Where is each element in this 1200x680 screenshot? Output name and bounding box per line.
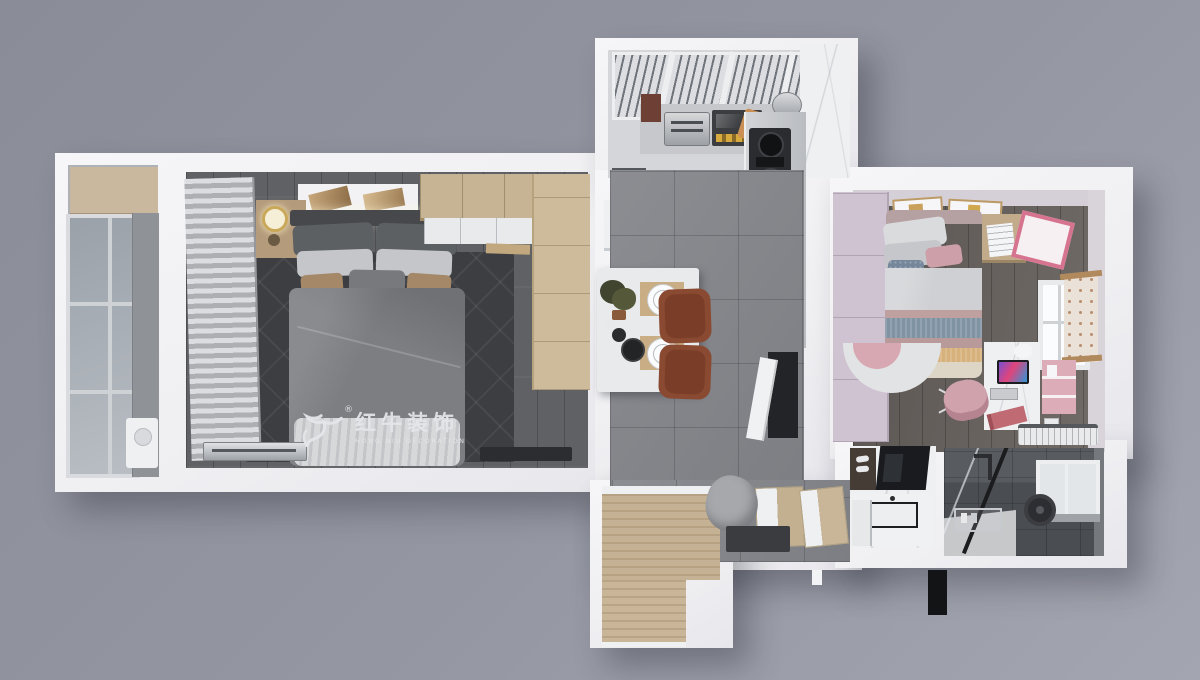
fan-hub	[1036, 506, 1044, 514]
shoe-cabinet	[602, 494, 720, 580]
registered-trademark-symbol: ®	[344, 405, 353, 415]
watermark: ® 红牛装饰 HONG NIU DECORATION	[300, 405, 480, 453]
wardrobe-side	[532, 174, 590, 390]
desk-monitor	[997, 360, 1029, 384]
toaster-slot	[671, 129, 703, 132]
kids-duvet-top	[885, 268, 982, 314]
pink-shelf-unit	[1042, 360, 1076, 414]
bull-logo-wrap: ®	[300, 409, 346, 449]
dining-chair	[658, 344, 712, 400]
bathroom-mirror	[876, 446, 931, 490]
brand-name-chinese: 红牛装饰	[355, 413, 466, 434]
window-mullion-vertical	[1058, 285, 1061, 365]
shower-head-pipe	[988, 454, 992, 480]
bathroom-niche-shelf	[850, 448, 876, 490]
shower-room	[944, 448, 1104, 556]
washing-machine	[852, 500, 872, 546]
kitchen-marble-wall	[800, 44, 850, 178]
bull-logo-icon	[300, 409, 344, 447]
white-vase	[603, 318, 614, 329]
bath-cart	[954, 508, 1002, 532]
entry-floor-mat	[726, 526, 790, 552]
chair-seat-cushion	[664, 293, 706, 338]
slippers	[856, 455, 870, 463]
art-gold-streak	[363, 188, 406, 213]
console-slot	[212, 449, 296, 452]
dining-chair	[658, 288, 712, 344]
floorplan-render: ® 红牛装饰 HONG NIU DECORATION	[0, 0, 1200, 680]
shoe-cabinet-lower	[602, 580, 686, 647]
balcony-storage-cabinet	[70, 167, 158, 217]
bedroom-curtain	[184, 177, 261, 461]
polka-dot-curtain	[1064, 274, 1098, 362]
mirror-reflection	[883, 454, 904, 482]
black-bowl	[621, 338, 645, 362]
nightstand-knob	[268, 234, 280, 246]
plant-pot	[612, 310, 626, 320]
toaster	[664, 112, 710, 146]
kids-wardrobe	[833, 192, 889, 442]
balcony-wash-basin	[126, 418, 158, 468]
black-bowl	[612, 328, 626, 342]
stove-control-panel	[756, 157, 784, 167]
rug-pink-band	[853, 343, 901, 369]
chair-seat-cushion	[664, 349, 706, 394]
utility-door-dark	[928, 570, 947, 615]
ac-console-unit	[203, 442, 307, 461]
cart-bottle	[961, 513, 967, 523]
table-plant	[600, 280, 638, 322]
swan-lamp	[1014, 344, 1032, 358]
shoe-cabinet-top	[602, 486, 720, 494]
exhaust-fan	[1024, 494, 1056, 526]
door-stopper-tab	[812, 570, 822, 585]
spice-box	[641, 94, 661, 122]
slippers	[856, 466, 869, 473]
kids-blanket-stripe-pink	[885, 310, 982, 318]
toaster-slot	[671, 121, 703, 124]
desk-keyboard	[990, 388, 1018, 400]
monitor-screen	[999, 362, 1027, 382]
vanity-sink	[870, 502, 918, 528]
duvet-fold-line	[297, 326, 460, 369]
sliding-door-panel	[424, 218, 532, 244]
brand-name-english: HONG NIU DECORATION	[355, 437, 466, 445]
stove-burner	[758, 132, 784, 158]
basin-bowl	[134, 428, 152, 446]
bedside-lamp	[262, 206, 288, 232]
plant-foliage	[612, 288, 636, 310]
shelf-book	[1047, 365, 1057, 377]
window-mullion-vertical	[1065, 464, 1068, 514]
cart-bottle	[971, 513, 977, 523]
window-mullion-horizontal	[70, 390, 136, 394]
watermark-text: 红牛装饰 HONG NIU DECORATION	[355, 413, 466, 445]
kids-ac-unit	[1018, 424, 1098, 445]
entry-bench-box	[799, 486, 849, 548]
faucet	[890, 496, 895, 501]
window-mullion-vertical	[108, 218, 112, 474]
wall-shelf	[486, 243, 530, 255]
window-mullion-horizontal	[70, 302, 136, 306]
kids-blanket-stripe-blue	[885, 318, 982, 338]
tv-console-dark	[480, 447, 572, 461]
